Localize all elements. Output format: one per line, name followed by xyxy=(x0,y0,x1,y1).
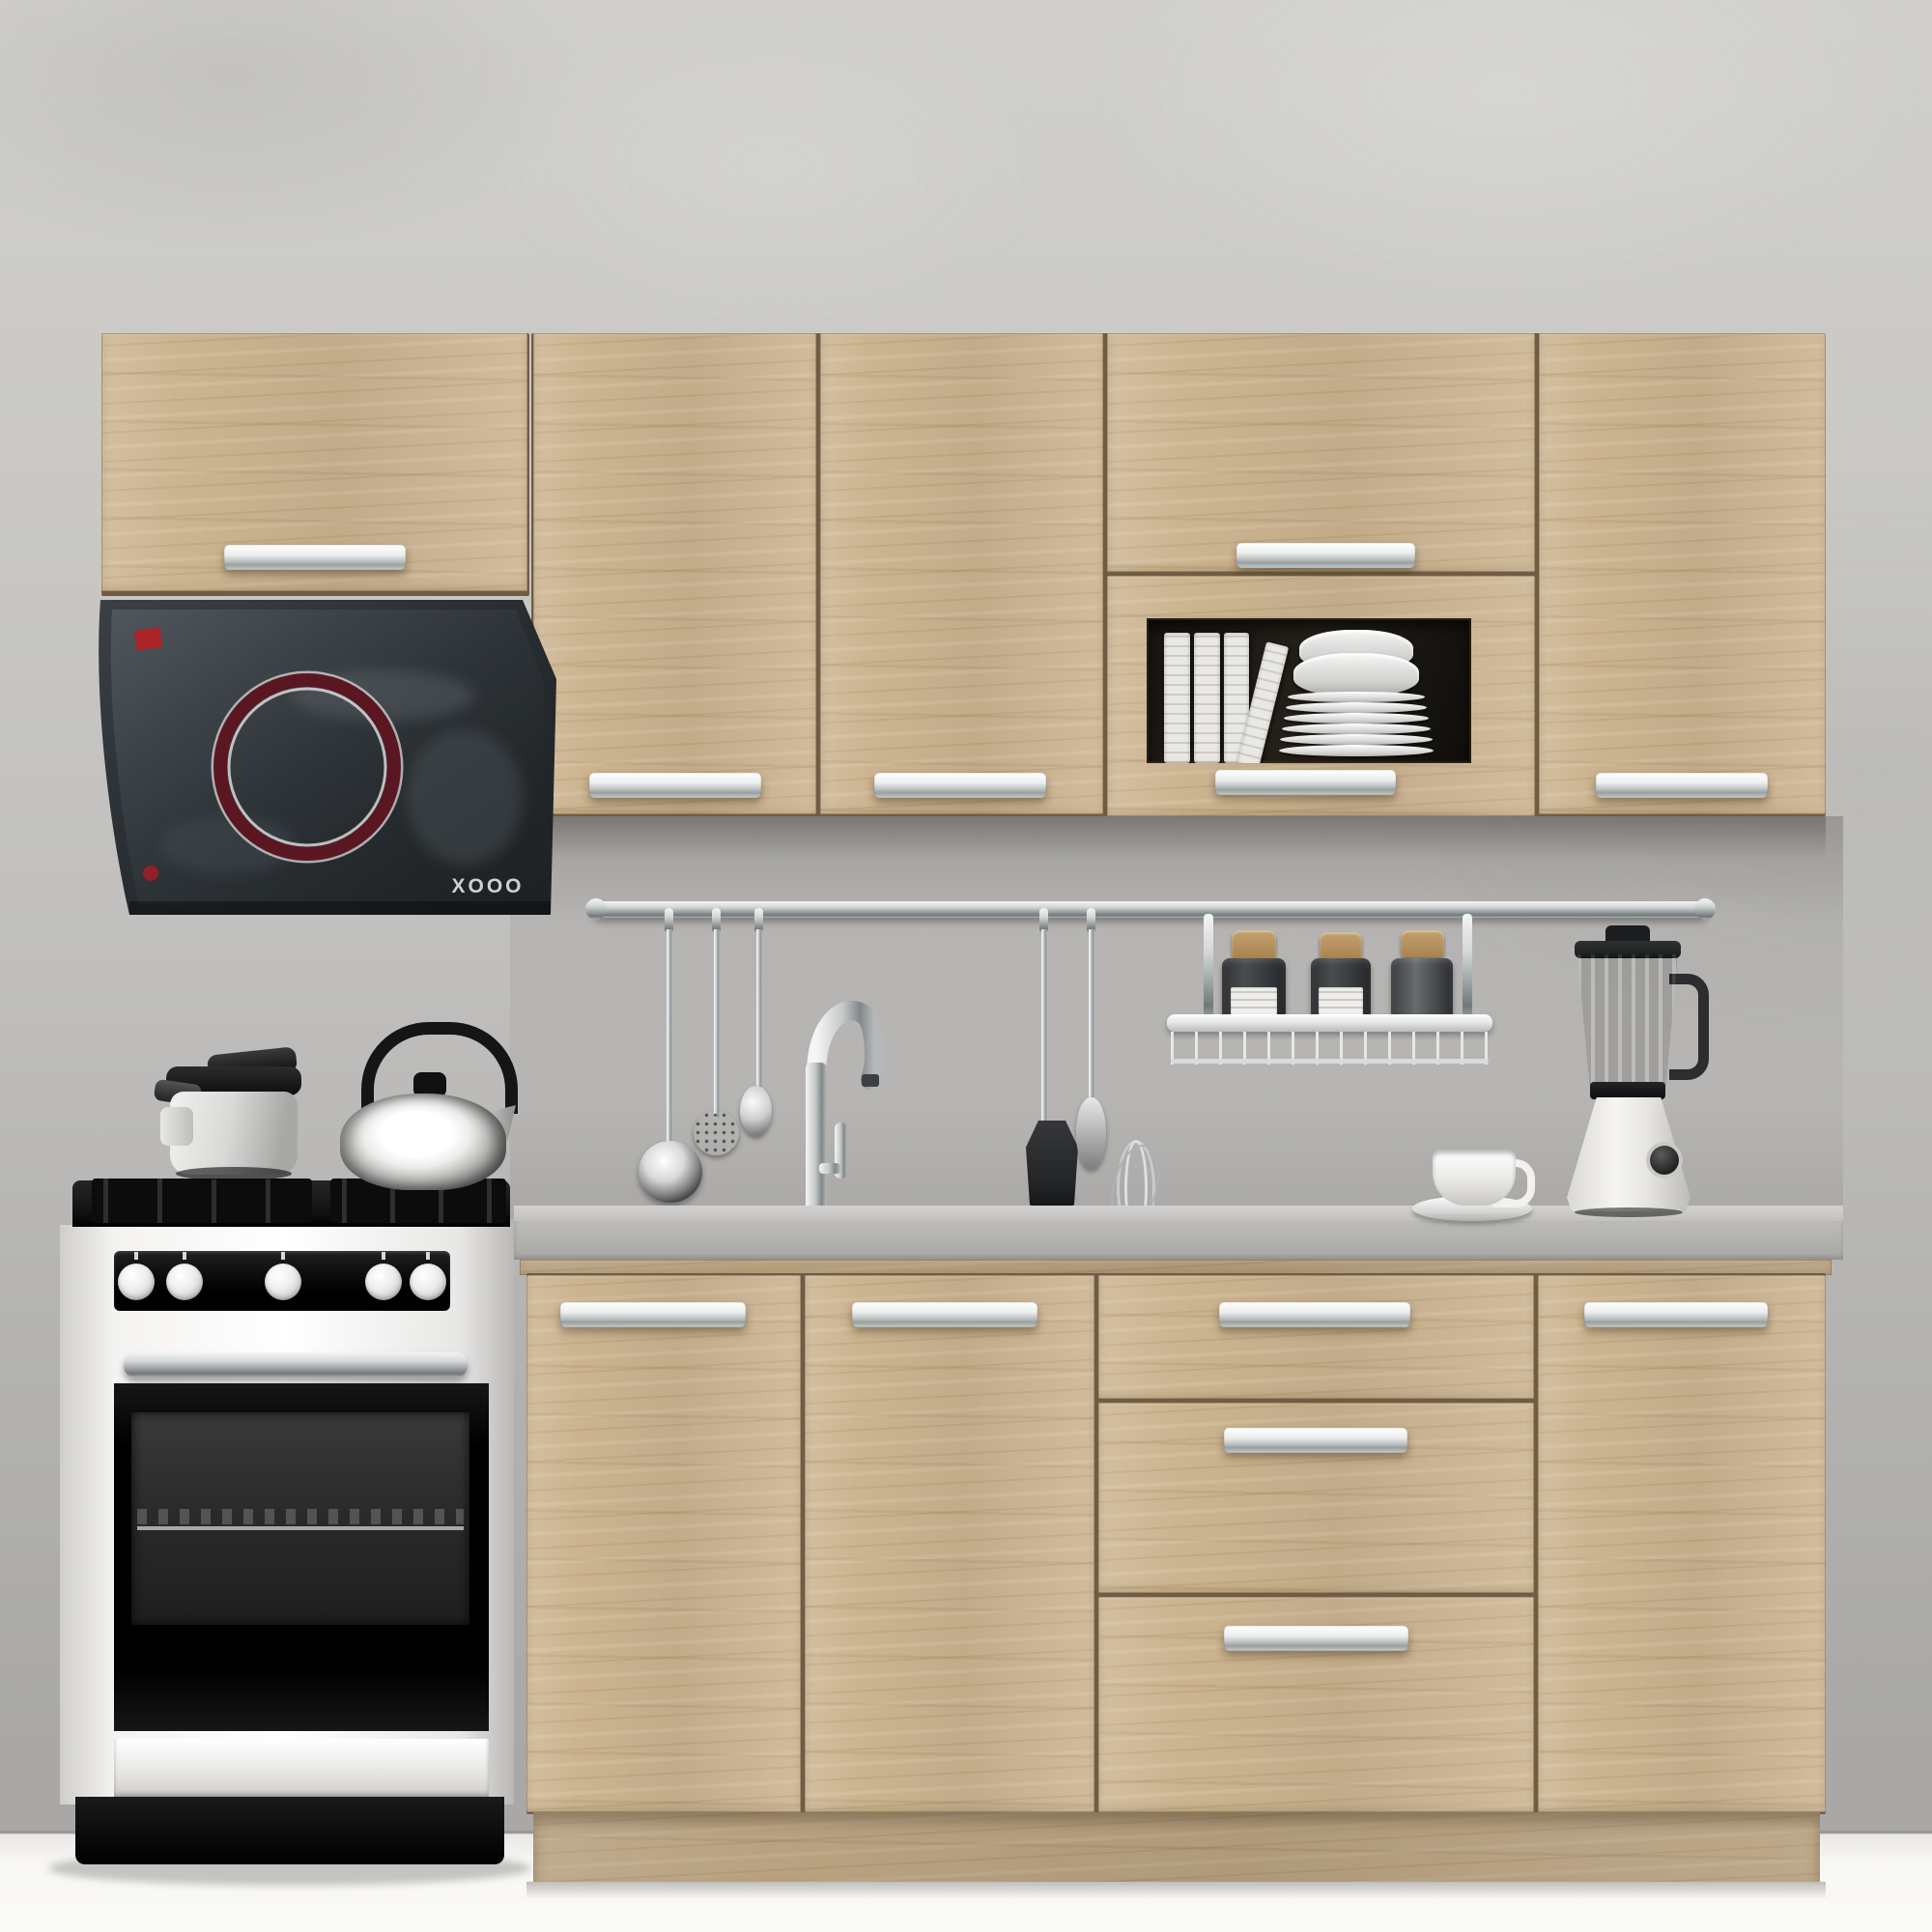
base-plinth xyxy=(533,1812,1820,1882)
stove-base xyxy=(75,1797,504,1864)
spice-jar-label xyxy=(1231,987,1277,1016)
plate xyxy=(1288,692,1425,702)
oven-rack xyxy=(137,1526,464,1530)
shelf-arm-right xyxy=(1463,914,1472,1022)
base-door-3-handle xyxy=(1584,1302,1768,1327)
drawer-2 xyxy=(1098,1403,1534,1593)
drawer-1-handle xyxy=(1219,1302,1410,1327)
book xyxy=(1194,633,1220,763)
stove-control-panel xyxy=(114,1251,450,1311)
rail-end-cap-left xyxy=(585,898,607,920)
skimmer-handle xyxy=(714,929,720,1118)
book xyxy=(1164,633,1190,763)
spoon-handle xyxy=(756,929,762,1094)
spice-jar xyxy=(1311,958,1371,1020)
range-hood: XOOO xyxy=(83,594,566,927)
wall-flap-door xyxy=(1107,333,1535,572)
shadow-under-cabinets xyxy=(533,816,1826,859)
turner-head xyxy=(1026,1121,1078,1209)
drawer-2-handle xyxy=(1224,1428,1407,1453)
cooker-side-handle xyxy=(160,1107,193,1146)
ladle-handle xyxy=(667,929,672,1147)
plate xyxy=(1282,724,1431,734)
base-door-2-handle xyxy=(852,1302,1037,1327)
drawer-3-handle xyxy=(1224,1626,1408,1651)
wall-door-5-handle xyxy=(1596,773,1768,798)
turner-handle xyxy=(1041,929,1047,1127)
shelf-arm-left xyxy=(1204,914,1213,1022)
wall-door-over-hood xyxy=(101,333,527,591)
base-door-1 xyxy=(526,1275,801,1812)
wall-door-2-handle xyxy=(589,773,761,798)
stove-knob xyxy=(166,1264,203,1300)
blender-knob xyxy=(1650,1146,1679,1175)
drawer-1 xyxy=(1098,1275,1534,1399)
spice-jar-cork xyxy=(1222,930,1286,961)
pressure-cooker xyxy=(155,1051,309,1186)
floor-shadow xyxy=(526,1882,1826,1899)
stove-drawer xyxy=(114,1739,489,1797)
glass-display-door xyxy=(1107,576,1535,816)
coffee-cup xyxy=(1433,1150,1516,1206)
cooker-shadow xyxy=(176,1167,292,1180)
wall-flap-door-handle xyxy=(1236,543,1415,568)
server-head xyxy=(1076,1097,1106,1169)
spice-jar-cork xyxy=(1391,930,1453,959)
glass-opening xyxy=(1147,618,1471,763)
bowl xyxy=(1293,653,1419,696)
stove-knob xyxy=(365,1264,402,1300)
wall-door-5 xyxy=(1539,333,1826,814)
blender-jar-handle xyxy=(1669,974,1709,1080)
server-handle xyxy=(1089,929,1094,1103)
stove-knob xyxy=(410,1264,446,1300)
base-door-2 xyxy=(805,1275,1094,1812)
oven-door xyxy=(114,1383,489,1731)
shelf-basket-rim xyxy=(1171,1059,1489,1064)
blender-collar xyxy=(1590,1082,1665,1099)
blender xyxy=(1565,925,1700,1221)
stove-knob xyxy=(118,1264,155,1300)
stove-knob xyxy=(265,1264,301,1300)
spice-jar-cork xyxy=(1311,932,1371,961)
rail-end-cap-right xyxy=(1694,898,1716,920)
spice-jar xyxy=(1222,958,1286,1020)
ladle-bowl xyxy=(639,1141,702,1203)
spice-jar-label xyxy=(1319,987,1363,1016)
plate xyxy=(1286,702,1427,713)
wall-door-3 xyxy=(820,333,1103,814)
kettle-body xyxy=(340,1094,506,1190)
oven-handle-bar xyxy=(124,1352,468,1378)
base-door-3 xyxy=(1538,1275,1826,1812)
drawer-3 xyxy=(1098,1597,1534,1812)
oven-window xyxy=(131,1412,469,1625)
plate xyxy=(1279,745,1434,756)
hood-brand-text: XOOO xyxy=(448,875,527,898)
spoon-head xyxy=(740,1086,772,1136)
base-door-1-handle xyxy=(560,1302,746,1327)
glass-door-handle xyxy=(1215,770,1396,795)
oven-rack-bars xyxy=(137,1509,464,1524)
wall-door-3-handle xyxy=(874,773,1046,798)
spice-jar xyxy=(1391,958,1453,1020)
wall-door-1-handle xyxy=(224,545,406,570)
shelf-bar xyxy=(1167,1014,1492,1032)
kitchen-product-render: XOOO xyxy=(0,0,1932,1932)
kettle xyxy=(338,1022,517,1196)
plate xyxy=(1280,734,1433,745)
skimmer-head xyxy=(694,1111,739,1155)
blender-foot-shadow xyxy=(1575,1207,1683,1217)
wall-door-2 xyxy=(533,333,816,814)
countertop-edge xyxy=(514,1221,1843,1260)
blender-jar xyxy=(1577,954,1678,1086)
plate xyxy=(1284,713,1429,724)
